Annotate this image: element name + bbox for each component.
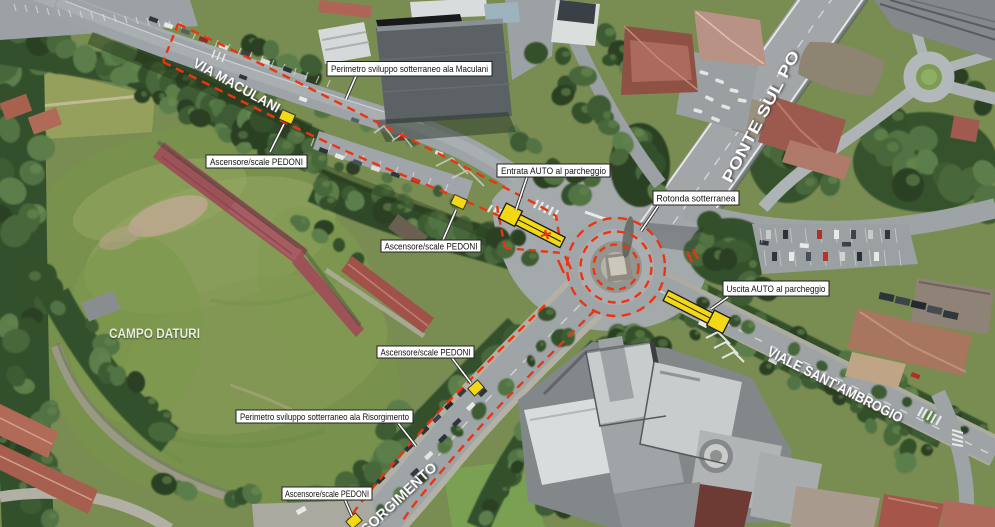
svg-text:Ascensore/scale PEDONI: Ascensore/scale PEDONI [210,157,303,168]
svg-text:Uscita AUTO al parcheggio: Uscita AUTO al parcheggio [727,284,826,295]
svg-text:Entrata AUTO al parcheggio: Entrata AUTO al parcheggio [501,166,606,177]
svg-text:CAMPO DATURI: CAMPO DATURI [109,326,200,341]
svg-text:Perimetro sviluppo sotterraneo: Perimetro sviluppo sotterraneo ala Risor… [240,412,409,423]
svg-text:Ascensore/scale PEDONI: Ascensore/scale PEDONI [285,489,369,500]
svg-text:Rotonda sotterranea: Rotonda sotterranea [657,193,737,204]
svg-text:Perimetro sviluppo sotterraneo: Perimetro sviluppo sotterraneo ala Macul… [331,64,488,75]
svg-text:Ascensore/scale PEDONI: Ascensore/scale PEDONI [381,347,471,358]
svg-text:Ascensore/scale PEDONI: Ascensore/scale PEDONI [385,241,478,252]
